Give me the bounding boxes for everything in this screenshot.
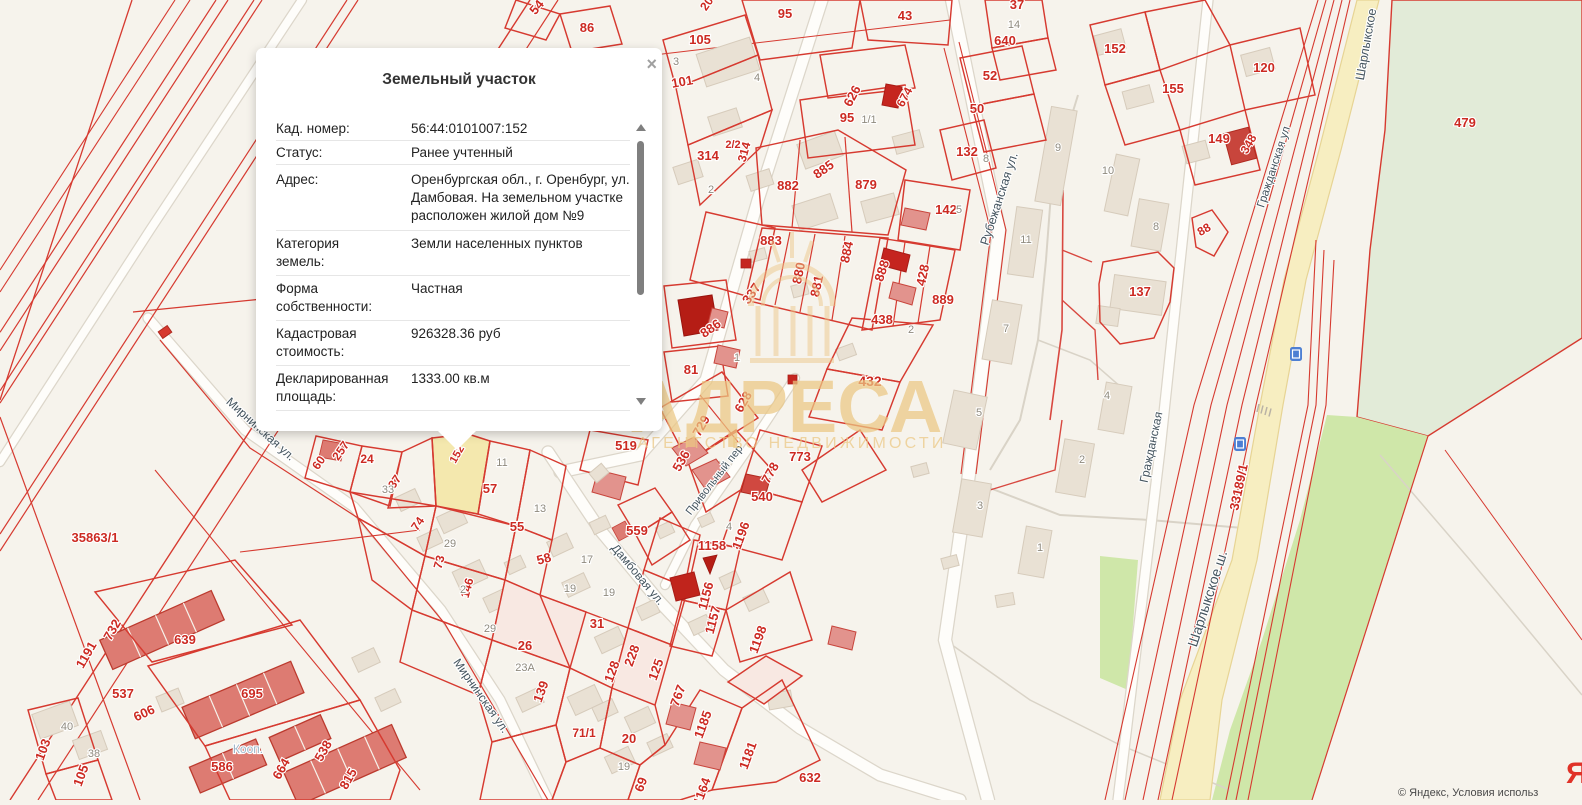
svg-text:2: 2 [1079, 454, 1085, 466]
svg-text:86: 86 [580, 20, 594, 35]
svg-text:586: 586 [211, 759, 233, 774]
svg-text:23А: 23А [515, 662, 535, 674]
svg-text:19: 19 [603, 587, 615, 599]
svg-text:8: 8 [983, 153, 989, 165]
svg-text:2: 2 [908, 324, 914, 336]
svg-text:559: 559 [626, 523, 648, 538]
svg-text:695: 695 [241, 686, 263, 701]
svg-text:57: 57 [483, 481, 497, 496]
svg-text:142: 142 [935, 202, 957, 217]
svg-text:540: 540 [751, 489, 773, 504]
svg-text:639: 639 [174, 632, 196, 647]
svg-text:29: 29 [484, 623, 496, 635]
svg-text:3: 3 [673, 56, 679, 68]
svg-text:10: 10 [1102, 165, 1114, 177]
svg-text:АГЕНТСТВО НЕДВИЖИМОСТИ: АГЕНТСТВО НЕДВИЖИМОСТИ [637, 435, 946, 452]
svg-text:137: 137 [1129, 284, 1151, 299]
svg-text:35863/1: 35863/1 [72, 530, 119, 545]
svg-text:33: 33 [382, 484, 394, 496]
svg-text:5: 5 [976, 407, 982, 419]
svg-text:7: 7 [1003, 323, 1009, 335]
svg-text:2: 2 [708, 184, 714, 196]
svg-text:29: 29 [444, 538, 456, 550]
svg-text:Кооп.: Кооп. [233, 742, 263, 756]
svg-text:314: 314 [697, 148, 719, 163]
svg-text:17: 17 [581, 554, 593, 566]
svg-text:52: 52 [983, 68, 997, 83]
svg-text:50: 50 [970, 101, 984, 116]
svg-text:43: 43 [898, 8, 912, 23]
svg-text:24: 24 [360, 452, 374, 466]
svg-text:479: 479 [1454, 115, 1476, 130]
svg-text:4: 4 [726, 521, 732, 533]
svg-text:40: 40 [61, 721, 73, 733]
svg-text:105: 105 [689, 32, 711, 47]
svg-text:13: 13 [534, 503, 546, 515]
svg-text:879: 879 [855, 177, 877, 192]
svg-text:8: 8 [1153, 221, 1159, 233]
svg-text:632: 632 [799, 770, 821, 785]
svg-text:95: 95 [778, 6, 792, 21]
svg-text:9: 9 [1055, 142, 1061, 154]
svg-text:149: 149 [1208, 131, 1230, 146]
svg-text:882: 882 [777, 178, 799, 193]
svg-text:640: 640 [994, 33, 1016, 48]
svg-text:537: 537 [112, 686, 134, 701]
svg-text:38: 38 [88, 748, 100, 760]
svg-text:11: 11 [1020, 234, 1031, 246]
svg-text:4: 4 [1104, 390, 1110, 402]
svg-text:5: 5 [956, 204, 962, 216]
svg-text:95: 95 [840, 110, 854, 125]
svg-text:11: 11 [496, 457, 507, 469]
svg-text:© Яндекс, Условия использ: © Яндекс, Условия использ [1398, 787, 1538, 799]
svg-text:1/1: 1/1 [861, 114, 876, 126]
svg-text:883: 883 [760, 233, 782, 248]
svg-text:152: 152 [1104, 41, 1126, 56]
svg-text:132: 132 [956, 144, 978, 159]
svg-text:2: 2 [460, 584, 466, 596]
svg-text:31: 31 [590, 616, 604, 631]
svg-text:19: 19 [618, 761, 630, 773]
svg-text:14: 14 [1008, 19, 1020, 31]
svg-text:120: 120 [1253, 60, 1275, 75]
svg-text:889: 889 [932, 292, 954, 307]
svg-text:1: 1 [734, 352, 740, 364]
svg-text:20: 20 [622, 731, 636, 746]
svg-text:37: 37 [1010, 0, 1024, 12]
svg-text:3: 3 [977, 500, 983, 512]
svg-text:155: 155 [1162, 81, 1184, 96]
svg-text:55: 55 [510, 519, 524, 534]
svg-text:26: 26 [518, 638, 532, 653]
svg-text:Я: Я [1566, 757, 1582, 790]
svg-text:1158: 1158 [698, 538, 726, 553]
svg-text:19: 19 [564, 583, 576, 595]
svg-text:438: 438 [871, 312, 893, 327]
svg-text:4: 4 [754, 72, 760, 84]
svg-text:1: 1 [1037, 542, 1043, 554]
svg-text:71/1: 71/1 [572, 726, 596, 740]
